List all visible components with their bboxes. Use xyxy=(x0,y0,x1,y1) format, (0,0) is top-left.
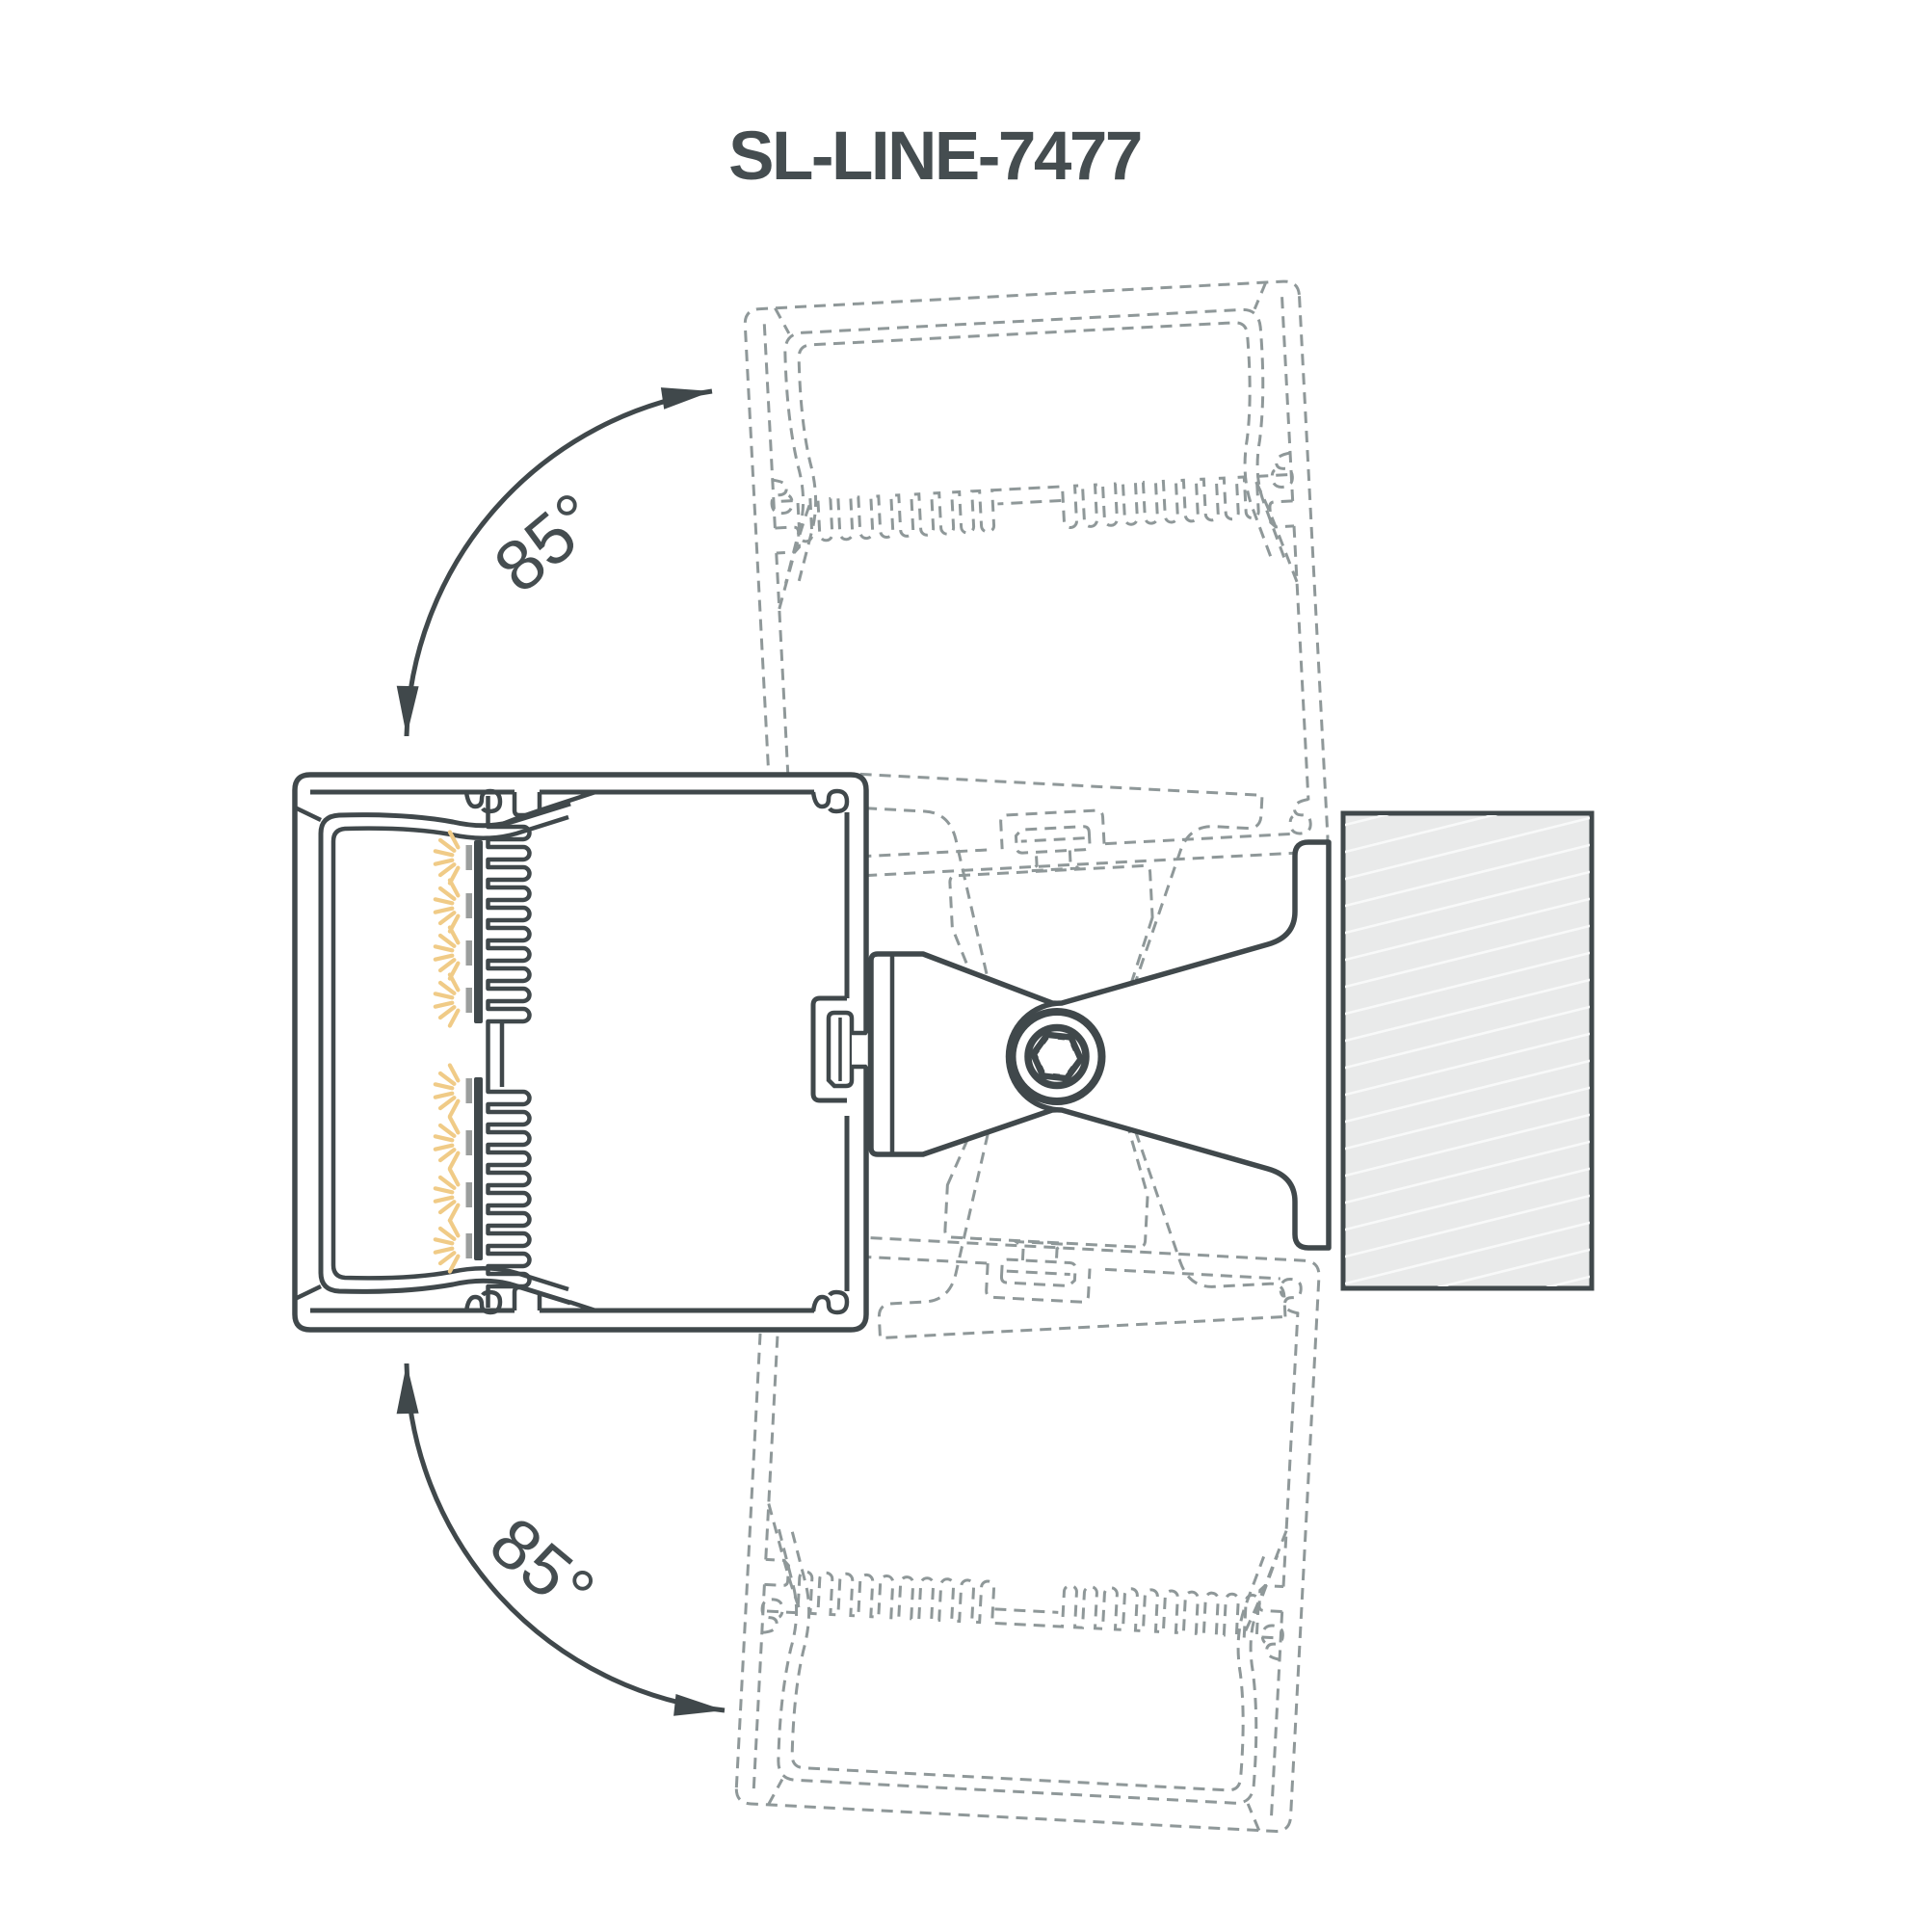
svg-text:SL-LINE-7477: SL-LINE-7477 xyxy=(728,119,1141,195)
